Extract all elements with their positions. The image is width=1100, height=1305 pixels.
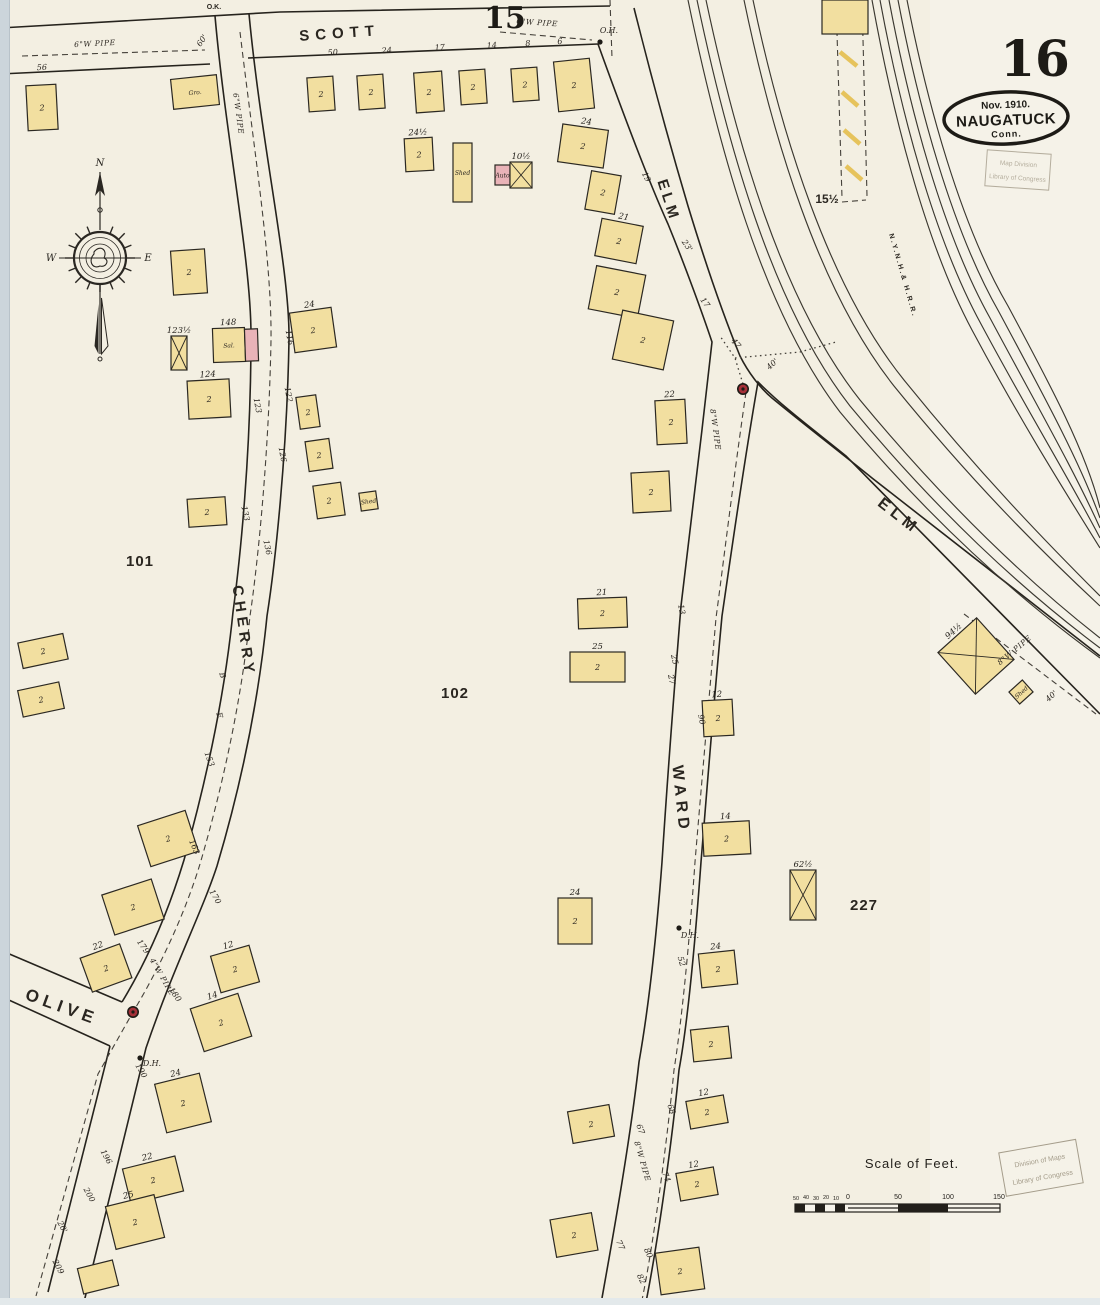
scale-seg [835,1204,845,1212]
story-count: 2 [647,488,654,497]
house-number: 25 [591,642,603,652]
building: 2 [690,1026,731,1062]
house-number: 22 [663,390,675,401]
story-count: 2 [469,83,476,92]
sanborn-map-sheet: 2Gro.222222224½ShedAuto10½22422212222222… [0,0,1100,1305]
building: 2 [459,69,487,105]
scale-seg [898,1204,948,1212]
water-marker-dot [676,925,681,930]
story-count: 2 [714,965,721,975]
map-label: O.K. [207,4,221,11]
building: 2 [585,171,621,215]
house-number: 21 [595,588,607,598]
story-count: 2 [599,609,605,618]
story-count: 2 [304,408,311,418]
building: 2 [414,71,445,113]
fire-hydrant-center [741,387,744,390]
building: Auto [494,165,510,185]
story-count: 2 [570,81,577,91]
street-number: 8 [525,39,531,48]
street-number: 50 [327,48,338,58]
street-number: D.H. [142,1059,161,1068]
scale-tick: 30 [813,1196,819,1202]
building: 2 [631,471,671,513]
scale-tick: 40 [803,1195,809,1201]
house-number: 14 [720,812,731,823]
building: 2 [511,67,539,102]
street-number: D.H. [680,931,699,940]
building: Shed [359,491,378,511]
scale-title: Scale of Feet. [865,1156,959,1171]
scan-edge-bottom [0,1298,1100,1305]
story-count: 2 [317,90,324,99]
story-count: 2 [425,88,432,97]
map-label: 227 [850,897,878,914]
barn-building: 62½ [790,859,816,920]
building [822,0,868,34]
oval-city: NAUGATUCK [956,110,1057,130]
building: 2 [655,1247,704,1295]
building: Shed [453,143,472,202]
house-number: 24 [569,888,581,898]
building: 2 [553,58,594,111]
story-count: 2 [309,326,316,336]
story-count: 2 [315,451,322,461]
story-count: 2 [521,80,528,89]
house-number: 148 [220,318,237,329]
building: 2 [568,1105,615,1144]
scale-tick: 20 [823,1195,829,1201]
oval-state: Conn. [991,128,1022,139]
building-footprint [244,329,258,361]
story-count: 2 [676,1267,683,1277]
street-number: 14 [486,41,497,51]
house-number: 24½ [407,127,428,139]
building: 2 [187,497,227,528]
compass-east-label: E [143,253,152,264]
scale-tick: 100 [942,1194,954,1201]
story-count: 2 [594,663,600,672]
house-number: 124 [199,370,216,381]
story-count: 2 [367,88,374,97]
building: 2 [313,482,345,519]
story-count: 2 [203,508,210,517]
building: 2 [26,84,58,131]
story-count: 2 [579,142,586,152]
scale-tick: 50 [894,1194,902,1201]
house-number: 123½ [167,325,191,336]
story-count: 2 [415,150,422,159]
building-use-label: Sal. [223,342,235,349]
house-number: 62½ [793,859,812,870]
scale-seg [815,1204,825,1212]
house-number: 24 [579,116,592,128]
building: 2 [171,249,208,295]
street-number: O.H. [600,26,618,35]
building: Gro. [171,75,220,110]
story-count: 2 [185,268,192,277]
story-count: 2 [38,103,45,112]
building: 2 [307,76,335,112]
water-marker-dot [597,39,602,44]
adjacent-sheet-number: 15 [484,1,526,36]
building: 2 [612,310,673,370]
fire-hydrant-center [131,1010,134,1013]
story-count: 2 [707,1040,714,1050]
building-use-label: Shed [455,170,471,177]
house-number: 12 [698,1087,710,1099]
street-number: 56 [37,63,48,73]
building-use-label: Auto [494,173,510,180]
scale-tick: 150 [993,1194,1005,1201]
map-label: 101 [126,553,154,570]
story-count: 2 [667,418,674,427]
scale-tick: 0 [846,1194,850,1201]
building: 2 [550,1213,598,1258]
building [244,329,258,361]
story-count: 2 [723,834,730,843]
street-number: 17 [434,43,446,53]
sheet-number: 16 [1000,29,1070,88]
scale-tick: 10 [833,1196,839,1202]
house-number: 24 [709,942,722,953]
building: 2 [357,74,385,110]
story-count: 2 [325,496,332,506]
house-number: 10½ [511,151,530,162]
house-number: 12 [688,1159,700,1171]
map-canvas: 2Gro.222222224½ShedAuto10½22422212222222… [0,0,1100,1305]
street-number: 24 [380,46,392,56]
scale-seg [795,1204,805,1212]
street-number: 6 [557,37,563,46]
story-count: 2 [205,395,212,404]
map-label: 102 [441,685,469,702]
building: 2 [296,395,320,429]
barn-building: 10½ [510,151,532,188]
building: 2 [588,266,645,319]
compass-west-label: W [46,253,57,264]
building-footprint [822,0,868,34]
map-label: 15½ [815,192,838,206]
barn-building: 123½ [167,325,191,370]
water-marker-dot [137,1055,142,1060]
scan-edge-left [0,0,9,1305]
scale-tick: 50 [793,1196,799,1202]
oval-date: Nov. 1910. [981,99,1030,112]
building-use-label: Gro. [188,89,202,97]
compass-north-label: N [95,158,106,169]
house-number: 12 [711,690,722,701]
story-count: 2 [714,714,721,723]
building: 2 [305,438,333,471]
house-number: 24 [302,300,315,312]
story-count: 2 [571,917,577,926]
